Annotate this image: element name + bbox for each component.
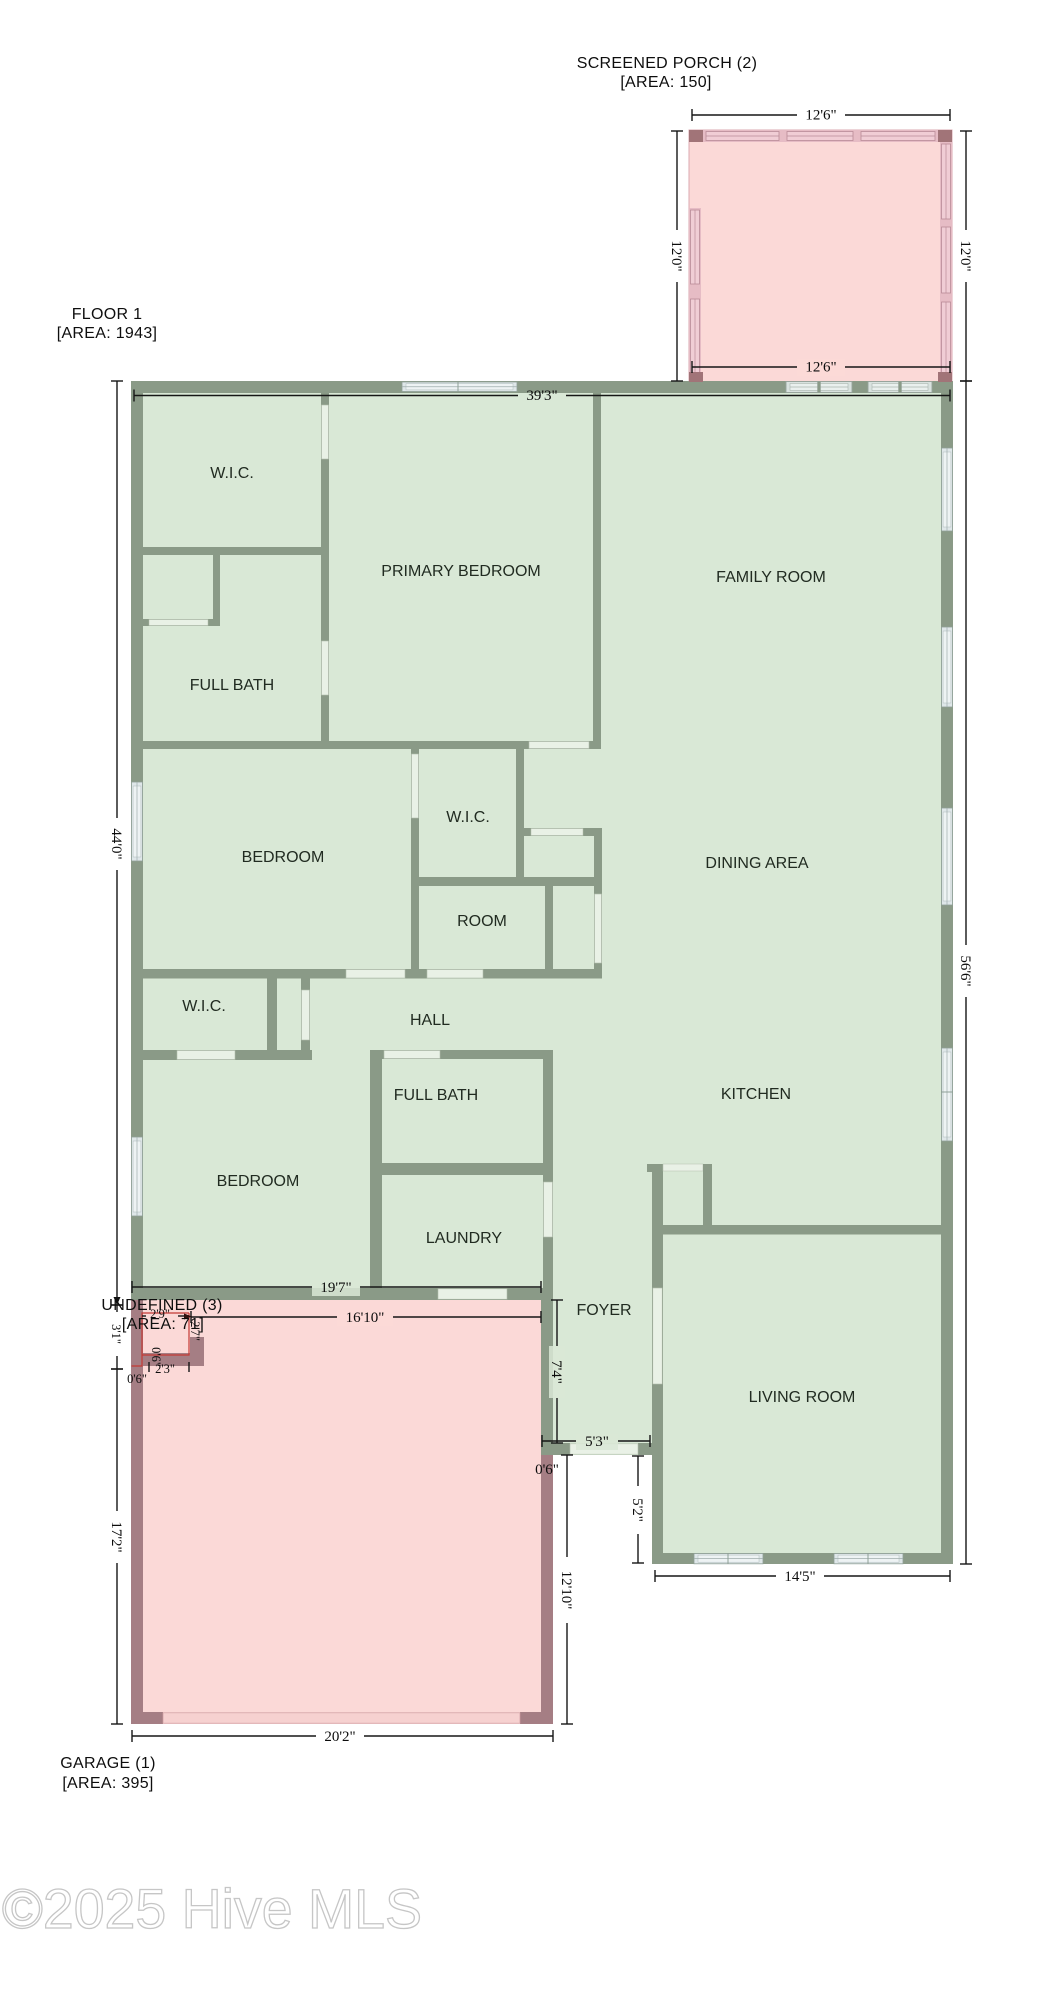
svg-text:FAMILY ROOM: FAMILY ROOM [716,569,826,586]
svg-text:[AREA: 1943]: [AREA: 1943] [57,325,158,342]
svg-text:BEDROOM: BEDROOM [217,1173,300,1190]
svg-text:FOYER: FOYER [576,1302,631,1319]
svg-text:5'2": 5'2" [629,1498,645,1522]
svg-text:GARAGE (1): GARAGE (1) [60,1755,155,1772]
svg-text:12'10": 12'10" [558,1571,574,1610]
svg-text:14'5": 14'5" [784,1569,815,1585]
svg-text:17'2": 17'2" [108,1521,124,1552]
svg-text:BEDROOM: BEDROOM [242,849,325,866]
svg-text:DINING AREA: DINING AREA [705,855,808,872]
svg-text:12'6": 12'6" [805,108,836,124]
svg-text:LAUNDRY: LAUNDRY [426,1230,503,1247]
svg-text:W.I.C.: W.I.C. [446,809,490,826]
svg-text:7'4": 7'4" [548,1360,564,1384]
svg-text:44'0": 44'0" [108,828,124,859]
svg-text:FLOOR 1: FLOOR 1 [72,306,143,323]
svg-text:[AREA: 71]: [AREA: 71] [122,1316,204,1333]
svg-text:SCREENED PORCH (2): SCREENED PORCH (2) [577,55,758,72]
svg-text:[AREA: 395]: [AREA: 395] [62,1775,153,1792]
svg-text:12'6": 12'6" [805,360,836,376]
svg-text:3'1": 3'1" [109,1324,123,1344]
svg-text:56'6": 56'6" [957,955,973,986]
svg-text:LIVING ROOM: LIVING ROOM [749,1389,856,1406]
svg-text:KITCHEN: KITCHEN [721,1086,791,1103]
svg-text:0'6": 0'6" [535,1462,559,1478]
svg-text:12'0": 12'0" [668,240,684,271]
svg-text:0'6": 0'6" [127,1372,147,1386]
svg-text:2'3": 2'3" [155,1362,175,1376]
svg-text:20'2": 20'2" [324,1729,355,1745]
svg-text:HALL: HALL [410,1012,450,1029]
svg-text:©2025 Hive MLS: ©2025 Hive MLS [2,1877,422,1940]
svg-text:19'7": 19'7" [320,1280,351,1296]
svg-text:[AREA: 150]: [AREA: 150] [620,74,711,91]
svg-text:FULL BATH: FULL BATH [394,1087,478,1104]
svg-text:39'3": 39'3" [526,388,557,404]
svg-text:12'0": 12'0" [957,240,973,271]
svg-text:FULL BATH: FULL BATH [190,677,274,694]
svg-text:W.I.C.: W.I.C. [182,998,226,1015]
svg-text:PRIMARY BEDROOM: PRIMARY BEDROOM [381,563,540,580]
svg-text:16'10": 16'10" [346,1310,385,1326]
svg-text:ROOM: ROOM [457,913,507,930]
svg-text:W.I.C.: W.I.C. [210,465,254,482]
svg-text:5'3": 5'3" [585,1434,609,1450]
svg-text:UNDEFINED (3): UNDEFINED (3) [101,1297,222,1314]
